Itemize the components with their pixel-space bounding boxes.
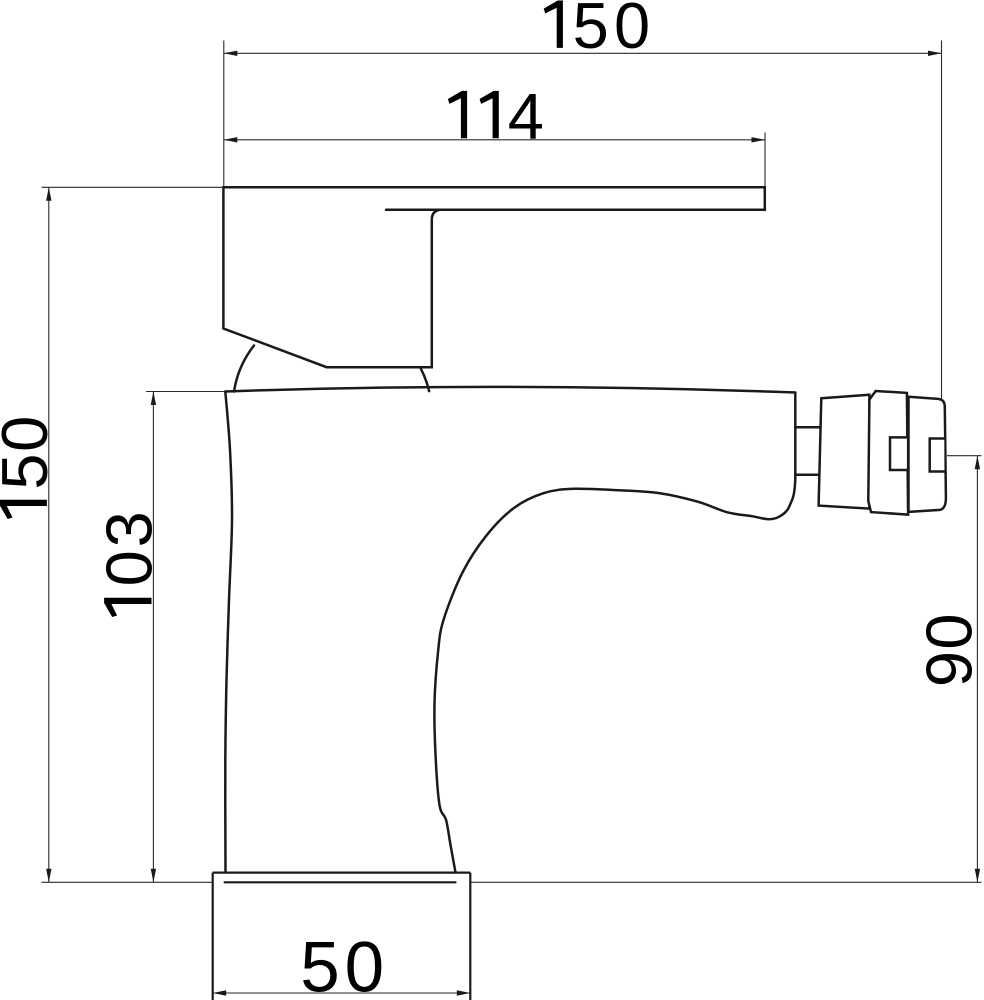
- svg-text:5: 5: [300, 928, 340, 1000]
- svg-text:5: 5: [573, 0, 609, 62]
- svg-text:4: 4: [508, 79, 544, 152]
- svg-text:0: 0: [93, 550, 166, 586]
- svg-text:0: 0: [913, 614, 984, 650]
- svg-text:0: 0: [345, 928, 385, 1000]
- svg-text:0: 0: [614, 0, 650, 62]
- svg-text:3: 3: [93, 511, 166, 547]
- svg-text:0: 0: [0, 416, 61, 452]
- svg-text:9: 9: [913, 651, 984, 687]
- svg-text:5: 5: [0, 454, 61, 490]
